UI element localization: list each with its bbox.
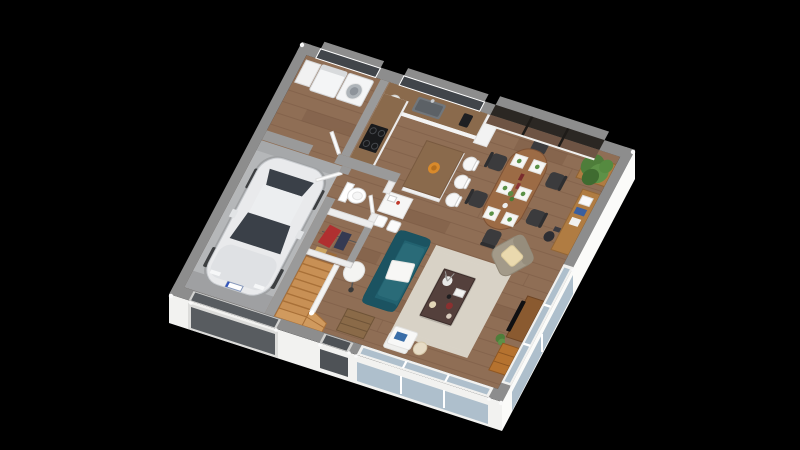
floor-plan-render	[0, 0, 800, 450]
